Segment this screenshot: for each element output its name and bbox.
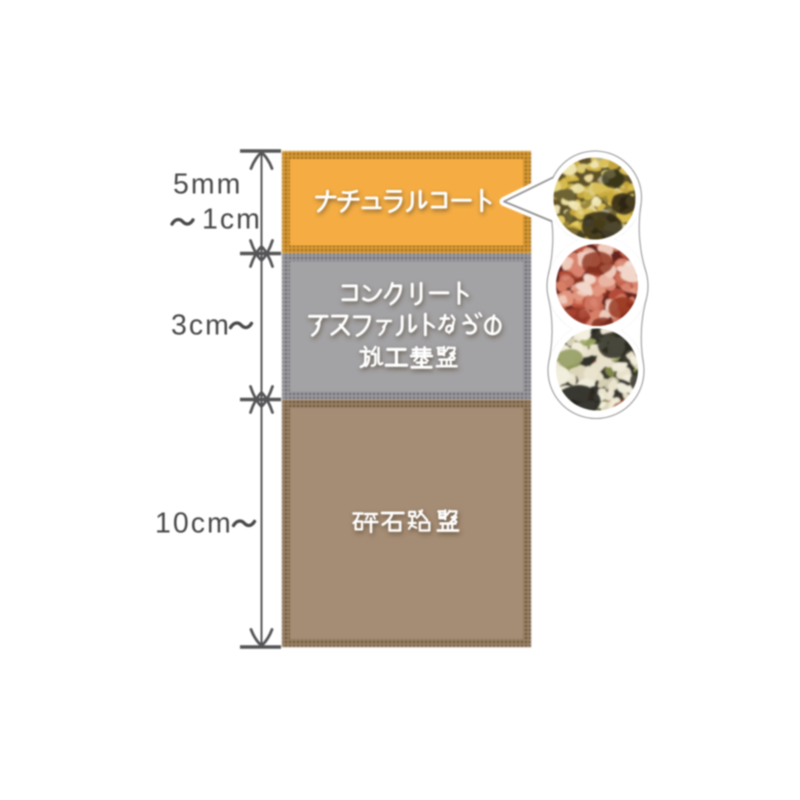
- svg-text:1cm: 1cm: [202, 204, 262, 236]
- svg-text:10cm: 10cm: [155, 508, 233, 540]
- svg-text:3cm: 3cm: [171, 310, 231, 342]
- svg-text:5mm: 5mm: [173, 169, 242, 201]
